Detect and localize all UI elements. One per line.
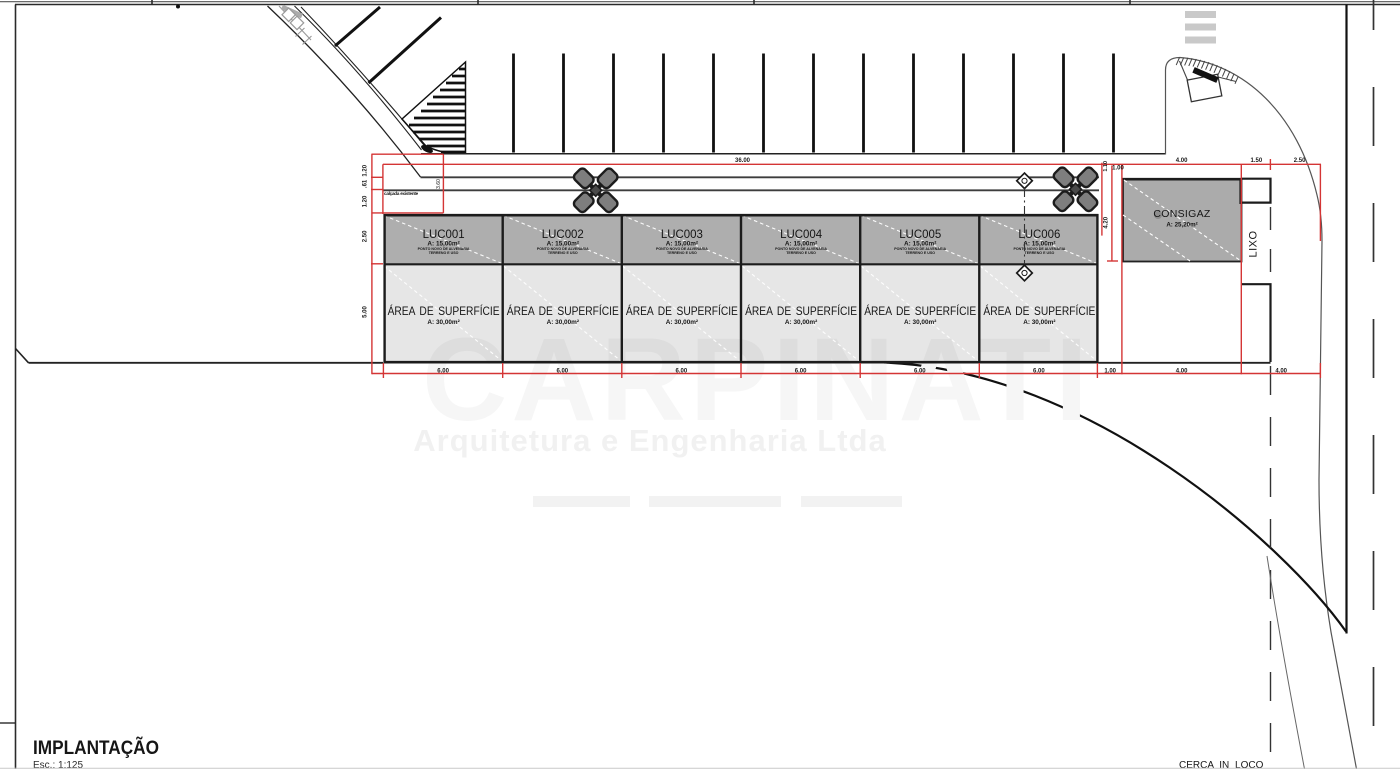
- svg-text:CONSIGAZ: CONSIGAZ: [1153, 208, 1211, 220]
- svg-text:1.10: 1.10: [1103, 161, 1109, 172]
- svg-text:LUC001: LUC001: [423, 227, 465, 241]
- svg-text:6.00: 6.00: [556, 369, 568, 375]
- svg-text:A: 30,00m²: A: 30,00m²: [904, 319, 936, 326]
- svg-text:IMPLANTAÇÃO: IMPLANTAÇÃO: [33, 736, 159, 759]
- svg-text:TERRENO E USO: TERRENO E USO: [429, 251, 459, 255]
- svg-text:LIXO: LIXO: [1248, 230, 1260, 257]
- svg-text:ÁREA DE SUPERFÍCIE: ÁREA DE SUPERFÍCIE: [864, 303, 976, 318]
- svg-text:A: 30,00m²: A: 30,00m²: [785, 319, 817, 326]
- svg-text:TERRENO E USO: TERRENO E USO: [786, 251, 816, 255]
- svg-text:4.00: 4.00: [1176, 369, 1188, 375]
- svg-text:2.50: 2.50: [363, 230, 369, 242]
- svg-text:1.20: 1.20: [363, 195, 369, 207]
- svg-text:LUC005: LUC005: [899, 227, 941, 241]
- svg-text:5.00: 5.00: [363, 306, 369, 318]
- svg-text:6.00: 6.00: [676, 369, 688, 375]
- svg-text:ÁREA DE SUPERFÍCIE: ÁREA DE SUPERFÍCIE: [507, 303, 619, 318]
- svg-text:ÁREA DE SUPERFÍCIE: ÁREA DE SUPERFÍCIE: [745, 303, 857, 318]
- svg-text:TERRENO E USO: TERRENO E USO: [667, 251, 697, 255]
- svg-text:4.00: 4.00: [1275, 369, 1287, 375]
- svg-text:.61: .61: [363, 179, 369, 188]
- svg-text:TERRENO E USO: TERRENO E USO: [1025, 251, 1055, 255]
- svg-text:A: 25,20m²: A: 25,20m²: [1166, 222, 1197, 229]
- svg-text:4.20: 4.20: [1104, 216, 1110, 228]
- svg-text:LUC003: LUC003: [661, 227, 703, 241]
- svg-text:CERCA IN LOCO: CERCA IN LOCO: [1179, 760, 1264, 769]
- svg-text:ÁREA DE SUPERFÍCIE: ÁREA DE SUPERFÍCIE: [983, 303, 1095, 318]
- svg-text:6.00: 6.00: [1033, 369, 1045, 375]
- svg-text:Esc.: 1:125: Esc.: 1:125: [33, 760, 83, 769]
- svg-text:6.00: 6.00: [437, 369, 449, 375]
- svg-text:4.00: 4.00: [1176, 158, 1188, 164]
- svg-text:6.00: 6.00: [914, 369, 926, 375]
- svg-text:A: 30,00m²: A: 30,00m²: [547, 319, 579, 326]
- svg-text:ÁREA DE SUPERFÍCIE: ÁREA DE SUPERFÍCIE: [626, 303, 738, 318]
- svg-text:LUC004: LUC004: [780, 227, 822, 241]
- svg-text:1.00: 1.00: [1104, 369, 1116, 375]
- svg-text:2.50: 2.50: [1294, 158, 1306, 164]
- svg-text:TERRENO E USO: TERRENO E USO: [548, 251, 578, 255]
- svg-text:TERRENO E USO: TERRENO E USO: [905, 251, 935, 255]
- svg-text:6.00: 6.00: [795, 369, 807, 375]
- svg-text:1.50: 1.50: [1251, 158, 1263, 164]
- svg-text:A: 30,00m²: A: 30,00m²: [666, 319, 698, 326]
- svg-text:calçada existente: calçada existente: [384, 191, 419, 196]
- svg-text:1.00: 1.00: [1112, 166, 1124, 172]
- svg-text:36.00: 36.00: [735, 158, 751, 164]
- svg-text:3.60: 3.60: [436, 179, 442, 189]
- svg-text:A: 30,00m²: A: 30,00m²: [1023, 319, 1055, 326]
- svg-text:LUC002: LUC002: [542, 227, 584, 241]
- svg-text:Arquitetura e Engenharia Ltda: Arquitetura e Engenharia Ltda: [413, 423, 886, 458]
- svg-text:A: 30,00m²: A: 30,00m²: [427, 319, 459, 326]
- svg-text:1.20: 1.20: [363, 164, 369, 176]
- svg-text:ÁREA DE SUPERFÍCIE: ÁREA DE SUPERFÍCIE: [388, 303, 500, 318]
